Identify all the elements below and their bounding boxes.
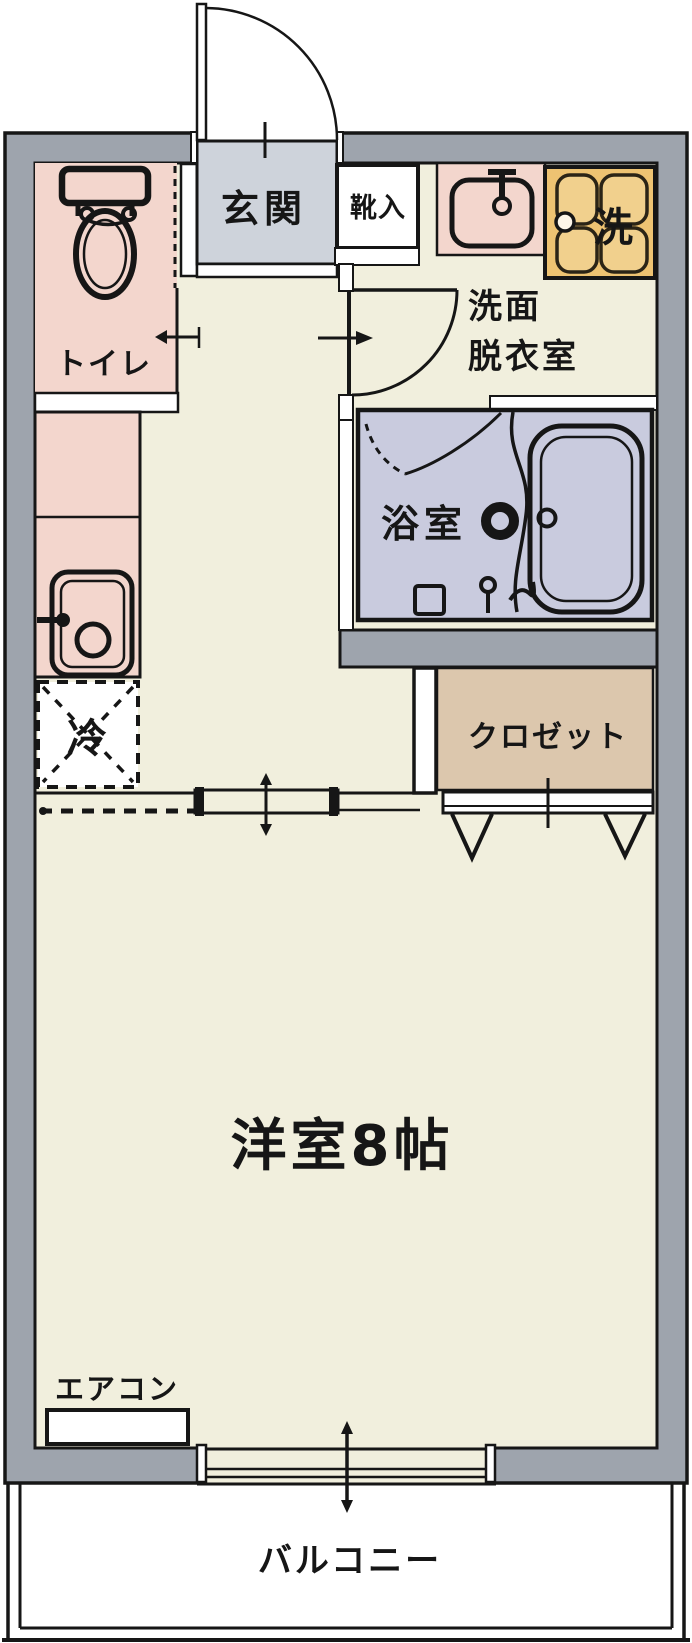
shoe-cabinet-base bbox=[335, 248, 419, 265]
floor-plan-svg: バルコニー トイレ bbox=[0, 0, 692, 1643]
washroom-label-2: 脱衣室 bbox=[468, 337, 579, 377]
aircon-unit bbox=[47, 1410, 188, 1444]
toilet-door-gap bbox=[35, 393, 178, 412]
toilet-genkan-wall bbox=[181, 164, 197, 276]
bathroom-label: 浴室 bbox=[381, 502, 467, 546]
entrance-door-leaf bbox=[197, 4, 206, 140]
washroom-wall-cap-top bbox=[339, 264, 353, 291]
washroom-wall-cap-bottom bbox=[339, 395, 353, 420]
shoe-cabinet: 靴入 bbox=[335, 165, 419, 265]
washer-label: 洗 bbox=[593, 205, 633, 251]
bathroom-lower-wall bbox=[340, 630, 657, 667]
entrance-door-arc bbox=[206, 8, 337, 140]
shoe-cabinet-label: 靴入 bbox=[350, 193, 406, 224]
entrance-label: 玄関 bbox=[221, 187, 307, 231]
entrance: 玄関 bbox=[191, 4, 343, 277]
washroom-label-1: 洗面 bbox=[468, 287, 542, 327]
fridge-label: 冷 bbox=[67, 716, 107, 762]
balcony-label: バルコニー bbox=[258, 1541, 442, 1581]
bathroom-left-wall bbox=[339, 420, 353, 630]
toilet-label: トイレ bbox=[56, 347, 152, 382]
toilet-room: トイレ bbox=[35, 163, 199, 412]
main-room-label: 洋室8帖 bbox=[231, 1114, 454, 1179]
refrigerator-space: 冷 bbox=[38, 682, 138, 787]
aircon-label: エアコン bbox=[55, 1372, 179, 1406]
air-conditioner: エアコン bbox=[47, 1372, 188, 1444]
kitchen bbox=[35, 412, 140, 677]
closet-left-wall bbox=[414, 668, 436, 793]
bathroom: 浴室 bbox=[339, 396, 657, 630]
floor-plan: バルコニー トイレ bbox=[0, 0, 692, 1643]
washing-machine-icon: 洗 bbox=[545, 167, 655, 278]
closet-label: クロゼット bbox=[468, 720, 628, 755]
entrance-step bbox=[197, 264, 337, 277]
